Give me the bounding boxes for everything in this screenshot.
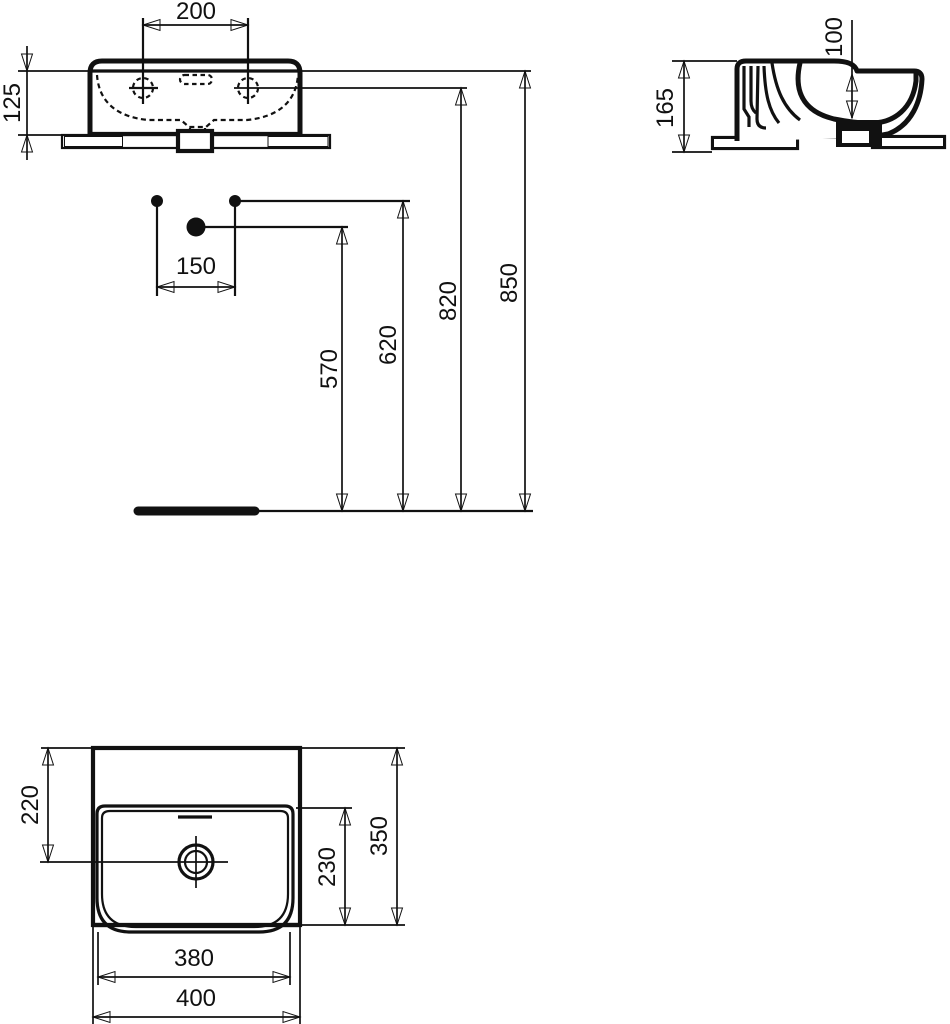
front-view: 200 125 [0, 0, 531, 160]
dim-label-570: 570 [316, 349, 343, 389]
fixing-point-right [229, 195, 241, 207]
dimension-hole-spacing: 200 [143, 0, 248, 31]
dimension-overall-width: 400 [93, 985, 300, 1023]
dim-label-165: 165 [652, 88, 679, 128]
dimension-drain-setback: 220 [17, 748, 54, 862]
side-view: 165 100 [652, 17, 945, 152]
dim-label-150: 150 [176, 253, 216, 280]
dimension-bowl-front-to-back: 230 [314, 808, 351, 925]
dim-label-200: 200 [176, 0, 216, 25]
dimension-waste-height: 570 [316, 227, 348, 511]
dim-label-820: 820 [435, 281, 462, 321]
dim-label-125: 125 [0, 83, 26, 123]
technical-drawing-page: 200 125 150 [0, 0, 950, 1024]
dimension-supply-height: 620 [375, 201, 409, 511]
dim-label-350: 350 [366, 816, 393, 856]
dim-label-850: 850 [496, 263, 523, 303]
drain-outlet [178, 131, 212, 151]
dimension-hole-offset: 150 [157, 253, 235, 293]
dim-label-400: 400 [176, 985, 216, 1012]
dimension-inner-width: 380 [98, 945, 290, 983]
dimension-hole-height: 820 [435, 88, 467, 511]
dimension-basin-edge-height: 125 [0, 46, 63, 160]
technical-drawing: 200 125 150 [0, 0, 950, 1024]
dimension-rim-height: 850 [496, 71, 531, 511]
bowl-rim-outer [97, 806, 293, 932]
dimension-overall-depth: 350 [366, 748, 403, 925]
fixing-point-left [151, 195, 163, 207]
side-drain-inner [842, 131, 869, 143]
dim-label-100: 100 [821, 17, 848, 57]
dim-label-380: 380 [174, 945, 214, 972]
waste-point [187, 218, 206, 237]
dim-label-220: 220 [17, 785, 44, 825]
dim-label-620: 620 [375, 325, 402, 365]
dim-label-230: 230 [314, 847, 341, 887]
plan-view: 220 230 350 380 400 [17, 748, 405, 1024]
